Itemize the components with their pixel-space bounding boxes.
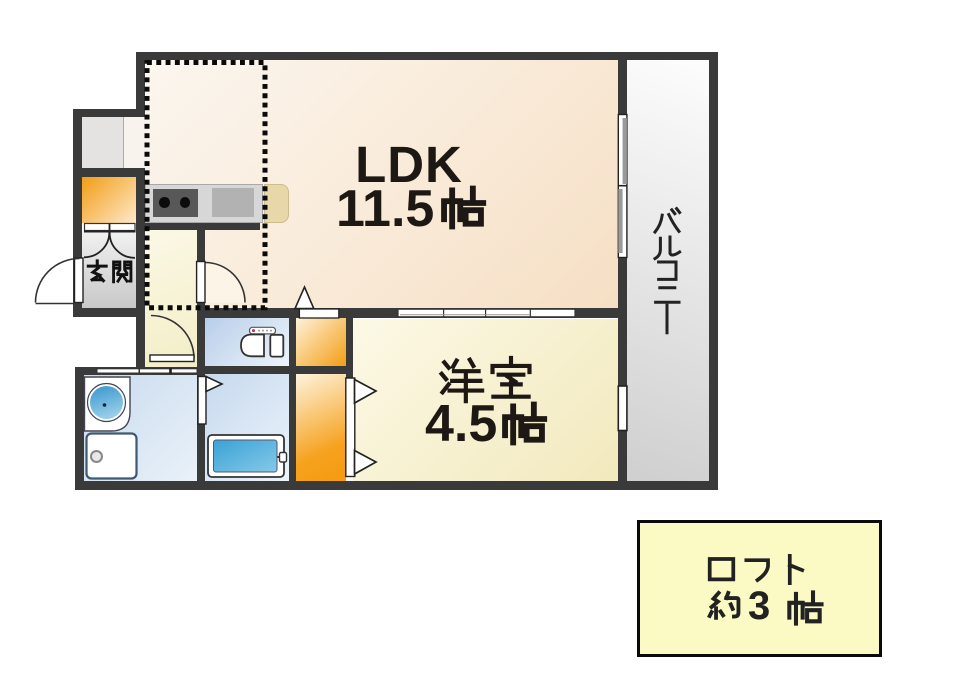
svg-text:11.5: 11.5 (336, 180, 434, 238)
svg-text:3: 3 (748, 584, 770, 628)
svg-text:4.5: 4.5 (425, 395, 497, 453)
